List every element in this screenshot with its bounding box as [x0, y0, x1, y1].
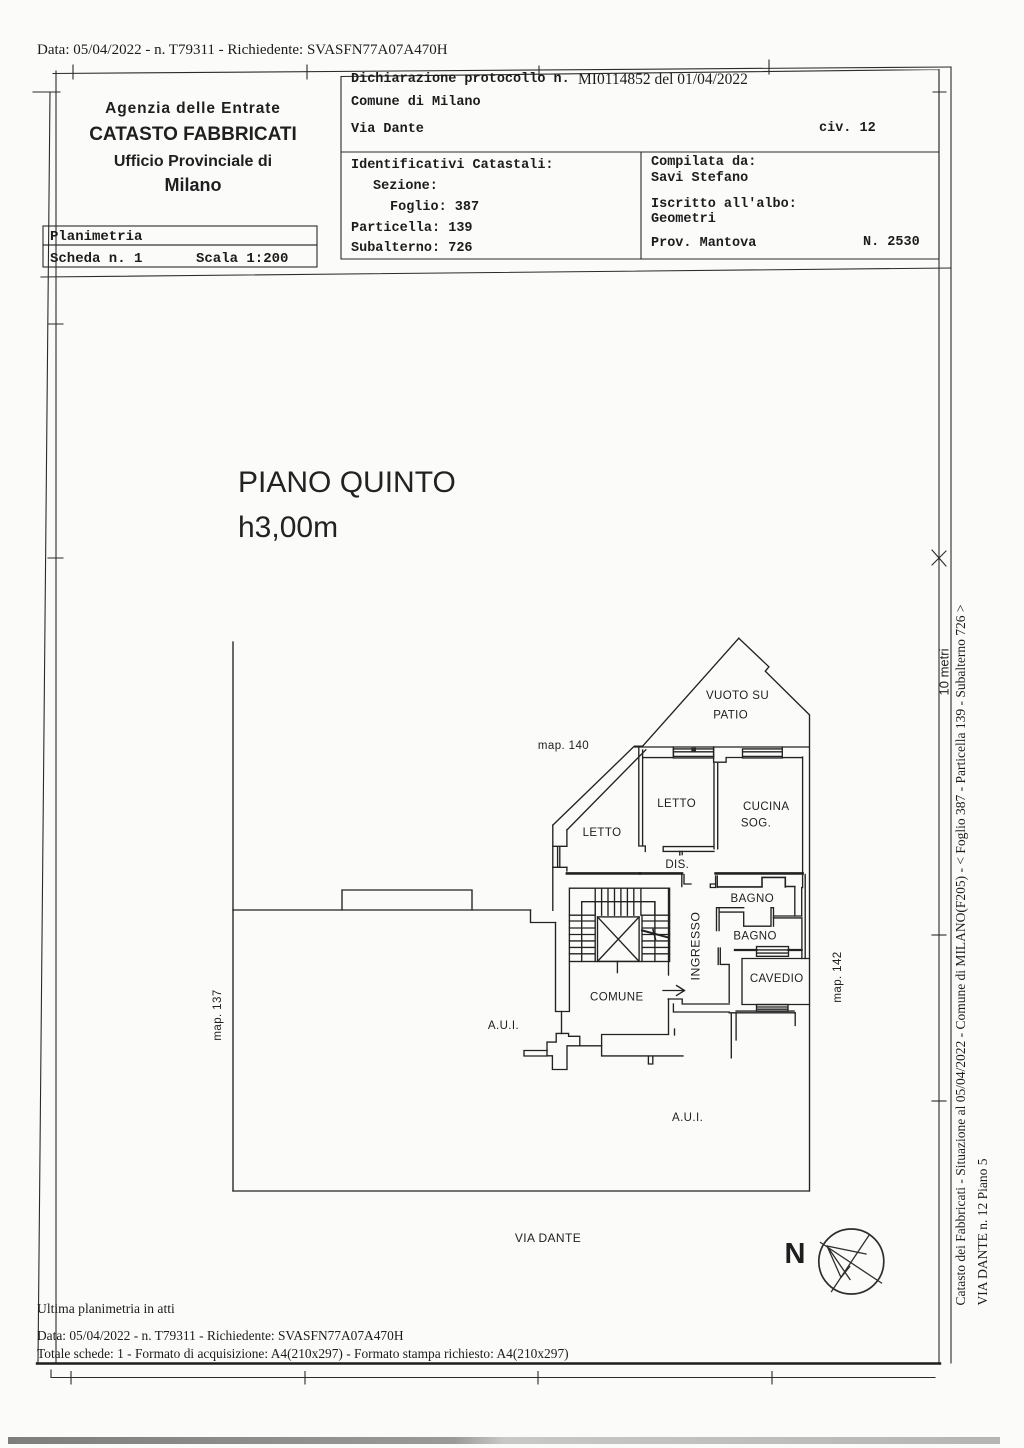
- svg-text:SOG.: SOG.: [741, 818, 771, 830]
- svg-text:Via Dante: Via Dante: [351, 122, 424, 137]
- svg-text:Agenzia delle Entrate: Agenzia delle Entrate: [105, 100, 281, 117]
- svg-text:BAGNO: BAGNO: [731, 893, 775, 905]
- svg-text:h3,00m: h3,00m: [238, 511, 338, 544]
- svg-text:LETTO: LETTO: [657, 798, 696, 810]
- svg-text:Scheda n. 1: Scheda n. 1: [50, 251, 142, 267]
- svg-text:Subalterno: 726: Subalterno: 726: [351, 241, 473, 256]
- svg-text:INGRESSO: INGRESSO: [689, 912, 703, 981]
- svg-text:Catasto dei Fabbricati - Situa: Catasto dei Fabbricati - Situazione al 0…: [953, 605, 968, 1306]
- svg-text:VUOTO SU: VUOTO SU: [706, 690, 769, 702]
- svg-text:CUCINA: CUCINA: [743, 801, 790, 813]
- svg-text:Comune di Milano: Comune di Milano: [351, 95, 481, 110]
- svg-text:Ufficio Provinciale di: Ufficio Provinciale di: [114, 153, 272, 170]
- svg-text:Milano: Milano: [165, 175, 222, 195]
- svg-text:BAGNO: BAGNO: [733, 931, 777, 943]
- svg-text:Geometri: Geometri: [651, 212, 716, 227]
- svg-text:CATASTO FABBRICATI: CATASTO FABBRICATI: [89, 124, 297, 145]
- svg-text:A.U.I.: A.U.I.: [488, 1020, 519, 1032]
- svg-text:10 metri: 10 metri: [937, 648, 952, 695]
- svg-text:Sezione:: Sezione:: [373, 179, 438, 194]
- svg-text:Ultima planimetria in atti: Ultima planimetria in atti: [37, 1301, 175, 1316]
- svg-text:Data: 05/04/2022 - n. T79311 -: Data: 05/04/2022 - n. T79311 - Richieden…: [37, 42, 448, 58]
- svg-text:MI0114852 del 01/04/2022: MI0114852 del 01/04/2022: [578, 71, 748, 88]
- svg-text:N: N: [785, 1238, 806, 1270]
- svg-text:Foglio: 387: Foglio: 387: [390, 200, 479, 215]
- svg-text:Savi Stefano: Savi Stefano: [651, 171, 748, 186]
- svg-text:LETTO: LETTO: [583, 827, 622, 839]
- svg-text:Data: 05/04/2022 - n. T79311 -: Data: 05/04/2022 - n. T79311 - Richieden…: [37, 1328, 404, 1343]
- svg-text:VIA DANTE: VIA DANTE: [515, 1231, 581, 1245]
- svg-text:Planimetria: Planimetria: [50, 229, 143, 245]
- svg-text:Particella: 139: Particella: 139: [351, 221, 473, 236]
- svg-text:Dichiarazione protocollo n.: Dichiarazione protocollo n.: [351, 72, 570, 87]
- svg-text:Scala 1:200: Scala 1:200: [196, 251, 288, 267]
- svg-text:COMUNE: COMUNE: [590, 992, 644, 1004]
- svg-text:map. 142: map. 142: [832, 951, 844, 1002]
- svg-text:A.U.I.: A.U.I.: [672, 1112, 703, 1124]
- svg-text:Totale schede: 1 - Formato di: Totale schede: 1 - Formato di acquisizio…: [37, 1346, 569, 1361]
- svg-text:map. 140: map. 140: [538, 740, 589, 752]
- svg-text:map. 137: map. 137: [212, 989, 224, 1040]
- svg-text:PIANO QUINTO: PIANO QUINTO: [238, 466, 456, 499]
- svg-text:DIS.: DIS.: [665, 859, 689, 871]
- svg-text:Compilata da:: Compilata da:: [651, 155, 756, 170]
- svg-text:PATIO: PATIO: [713, 710, 748, 722]
- svg-text:civ. 12: civ. 12: [819, 121, 876, 136]
- svg-text:VIA DANTE n. 12 Piano 5: VIA DANTE n. 12 Piano 5: [975, 1158, 990, 1305]
- svg-text:Identificativi Catastali:: Identificativi Catastali:: [351, 158, 554, 173]
- svg-text:CAVEDIO: CAVEDIO: [750, 973, 804, 985]
- svg-text:Iscritto all'albo:: Iscritto all'albo:: [651, 197, 797, 212]
- svg-text:Prov. Mantova: Prov. Mantova: [651, 236, 756, 251]
- svg-text:N. 2530: N. 2530: [863, 235, 920, 250]
